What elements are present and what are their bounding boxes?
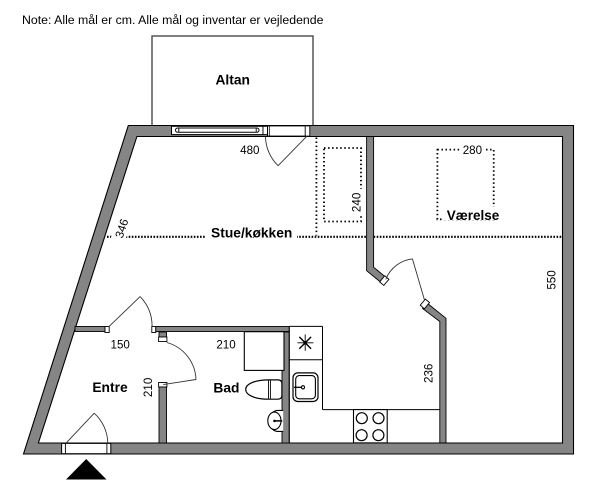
- svg-text:Note: Alle mål er cm. Alle mål: Note: Alle mål er cm. Alle mål og invent…: [22, 13, 324, 27]
- svg-text:480: 480: [240, 144, 259, 157]
- svg-text:210: 210: [216, 339, 235, 352]
- svg-text:Stue/køkken: Stue/køkken: [211, 225, 292, 240]
- svg-text:240: 240: [350, 193, 363, 212]
- svg-text:210: 210: [142, 378, 155, 397]
- svg-text:Altan: Altan: [215, 73, 250, 88]
- svg-text:550: 550: [546, 270, 559, 289]
- svg-text:Bad: Bad: [213, 381, 239, 396]
- svg-text:236: 236: [423, 364, 436, 383]
- svg-text:280: 280: [463, 144, 482, 157]
- svg-text:Entre: Entre: [92, 380, 128, 395]
- svg-text:Værelse: Værelse: [447, 208, 500, 223]
- svg-text:150: 150: [111, 339, 130, 352]
